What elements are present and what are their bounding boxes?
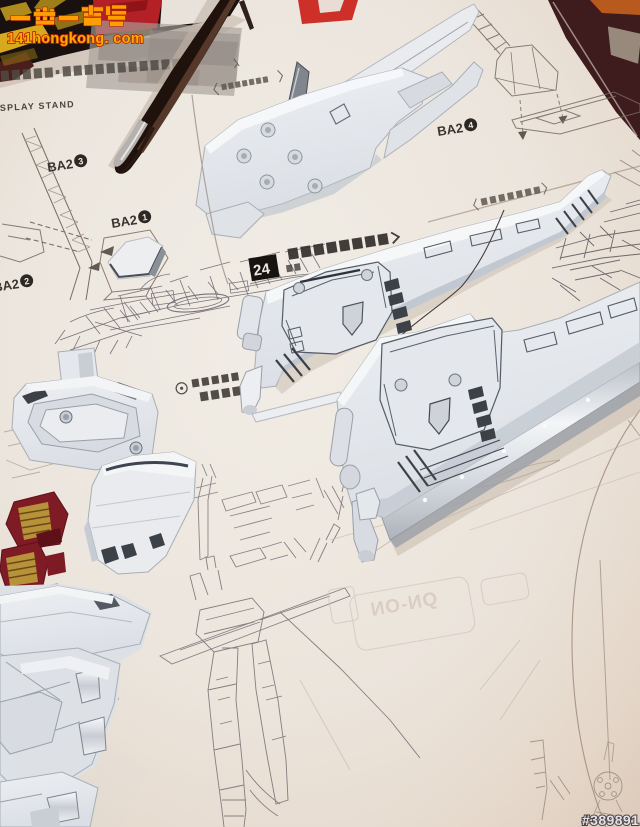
svg-text:141hongkong. com: 141hongkong. com bbox=[7, 31, 144, 47]
svg-text:24: 24 bbox=[252, 260, 272, 280]
svg-text:#389891: #389891 bbox=[582, 812, 639, 827]
